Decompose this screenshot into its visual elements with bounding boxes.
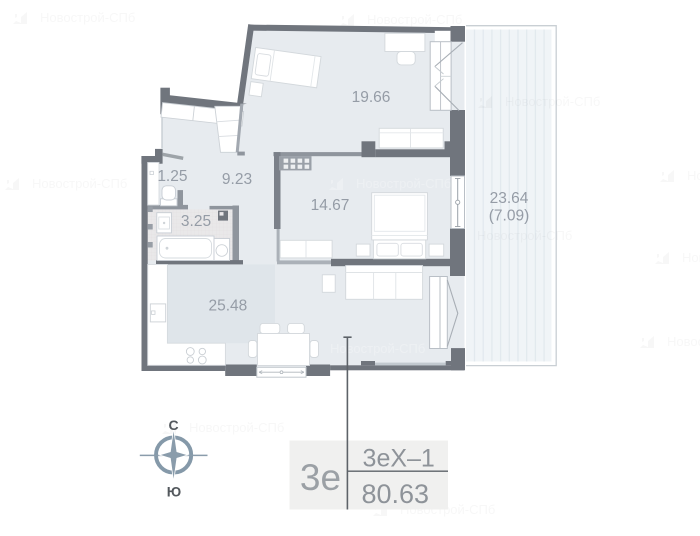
svg-text:Ю: Ю bbox=[167, 483, 181, 499]
svg-text:9.23: 9.23 bbox=[222, 171, 252, 188]
svg-text:Новострой-СПб: Новострой-СПб bbox=[40, 10, 135, 25]
svg-text:Новострой-СПб: Новострой-СПб bbox=[687, 168, 700, 183]
svg-text:1.25: 1.25 bbox=[157, 168, 187, 185]
svg-text:3е: 3е bbox=[300, 457, 341, 498]
svg-text:С: С bbox=[169, 417, 179, 433]
svg-text:Новострой-СПб: Новострой-СПб bbox=[189, 420, 284, 435]
svg-text:Новострой-СПб: Новострой-СПб bbox=[330, 341, 425, 356]
svg-text:25.48: 25.48 bbox=[209, 298, 248, 315]
svg-text:Новострой-СПб: Новострой-СПб bbox=[505, 94, 600, 109]
svg-text:80.63: 80.63 bbox=[362, 479, 430, 509]
svg-text:14.67: 14.67 bbox=[311, 197, 350, 214]
svg-text:Новострой-СПб: Новострой-СПб bbox=[367, 12, 462, 27]
svg-text:Новострой-СПб: Новострой-СПб bbox=[477, 228, 572, 243]
svg-text:19.66: 19.66 bbox=[352, 89, 391, 106]
svg-text:(7.09): (7.09) bbox=[489, 208, 530, 225]
svg-text:3еХ–1: 3еХ–1 bbox=[363, 444, 435, 472]
svg-text:Новострой-СПб: Новострой-СПб bbox=[356, 176, 451, 191]
svg-text:Новострой-СПб: Новострой-СПб bbox=[32, 176, 127, 191]
svg-text:Новострой-СПб: Новострой-СПб bbox=[667, 334, 700, 349]
svg-text:23.64: 23.64 bbox=[490, 190, 529, 207]
svg-text:Новострой-СПб: Новострой-СПб bbox=[682, 250, 700, 265]
svg-text:3.25: 3.25 bbox=[181, 213, 211, 230]
